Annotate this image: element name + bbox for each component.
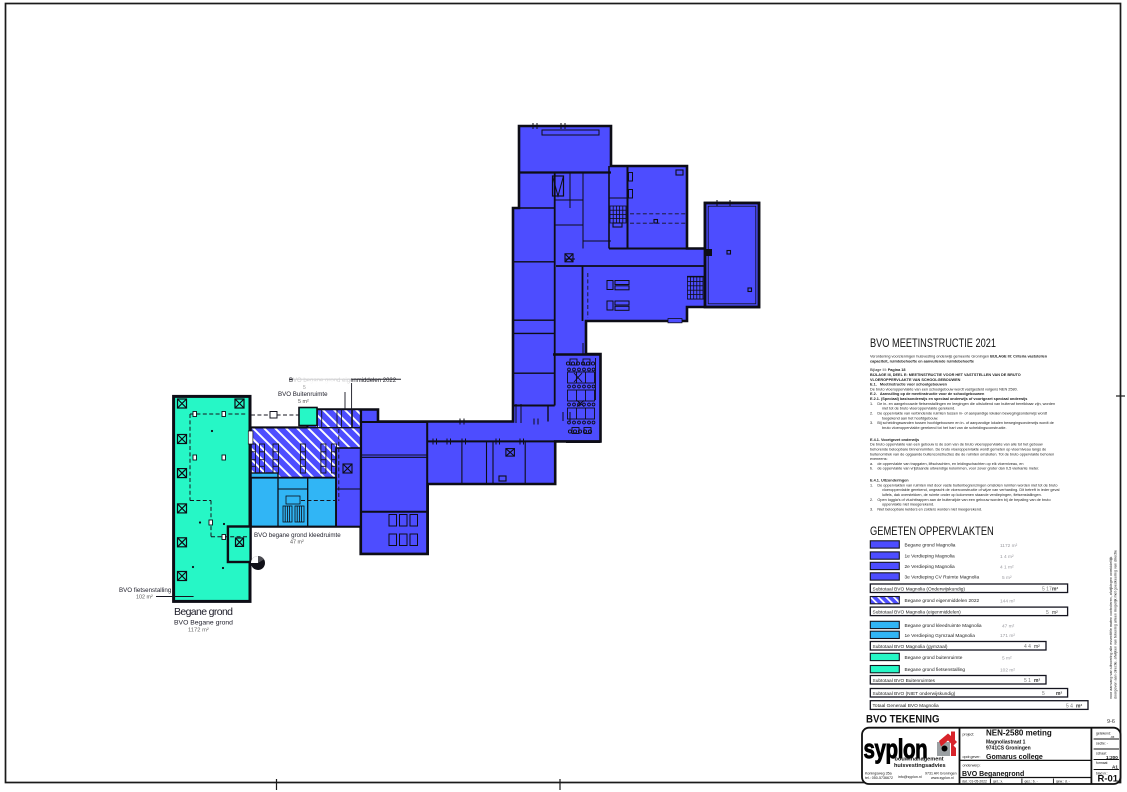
svg-text:gew.: d. -: gew.: d. - bbox=[1056, 779, 1070, 783]
svg-text:1:200: 1:200 bbox=[1106, 755, 1118, 760]
svg-text:formaat: formaat bbox=[1096, 761, 1108, 765]
svg-text:NEN-2580 meting: NEN-2580 meting bbox=[986, 729, 1052, 738]
svg-text:huisvestingsadvies: huisvestingsadvies bbox=[894, 763, 946, 769]
svg-text:bouwmanagement: bouwmanagement bbox=[895, 757, 944, 763]
svg-text:tel.: 050-5736672: tel.: 050-5736672 bbox=[865, 776, 893, 780]
svg-text:9741CS Groningen: 9741CS Groningen bbox=[986, 746, 1031, 752]
svg-text:dat.: 01-05-2022: dat.: 01-05-2022 bbox=[962, 779, 987, 783]
svg-text:BVO Beganegrond: BVO Beganegrond bbox=[962, 771, 1024, 778]
svg-text:project:: project: bbox=[963, 733, 975, 737]
svg-text:getekend:: getekend: bbox=[1096, 732, 1111, 736]
svg-text:www.syplon.nl: www.syplon.nl bbox=[931, 776, 954, 780]
svg-text:info@syplon.nl: info@syplon.nl bbox=[898, 775, 922, 779]
svg-text:onderwerp:: onderwerp: bbox=[963, 763, 981, 767]
svg-text:.xx: .xx bbox=[1110, 735, 1115, 739]
svg-text:opdr.gever:: opdr.gever: bbox=[963, 755, 981, 759]
svg-text:Gomarus college: Gomarus college bbox=[986, 754, 1043, 761]
svg-text:gez.: b. -: gez.: b. - bbox=[1025, 779, 1038, 783]
svg-text:get.: x.: get.: x. bbox=[993, 779, 1003, 783]
svg-text:A1: A1 bbox=[1112, 765, 1118, 770]
svg-text:sectie: -: sectie: - bbox=[1096, 741, 1108, 745]
svg-text:R-01: R-01 bbox=[1098, 773, 1119, 784]
